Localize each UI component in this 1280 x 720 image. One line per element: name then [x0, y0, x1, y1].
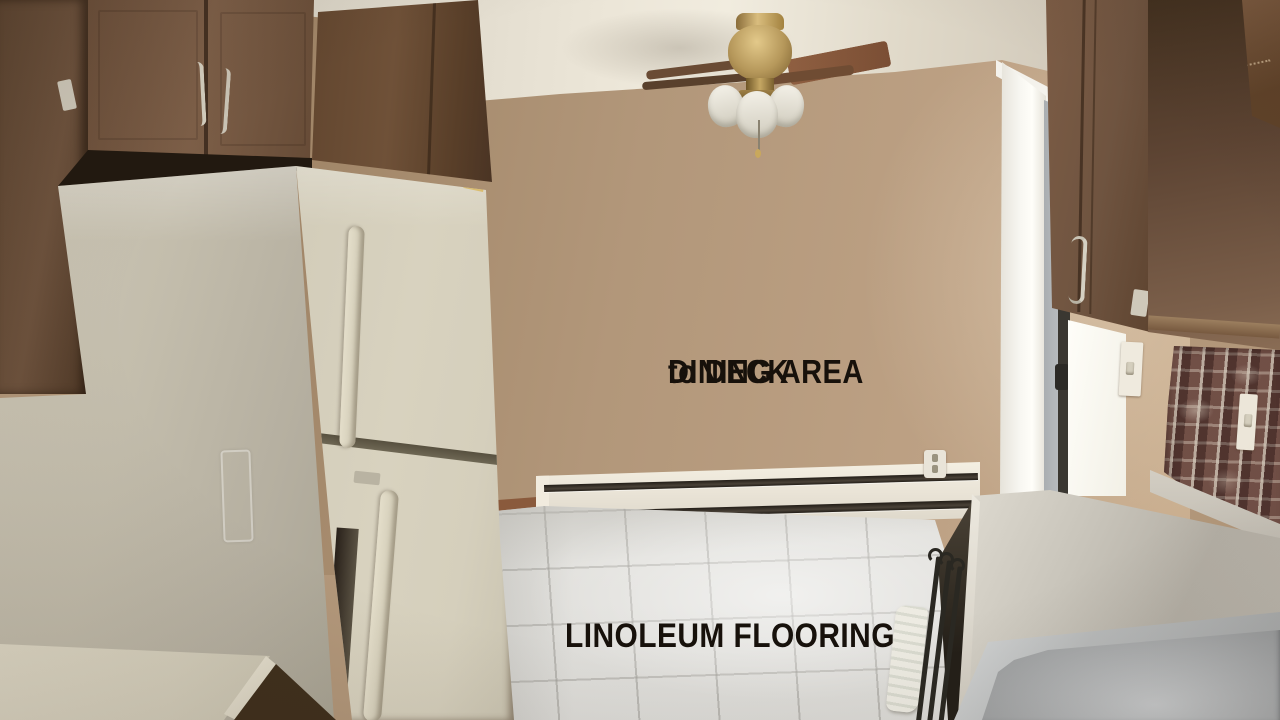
fridge-door-hinge — [353, 471, 380, 486]
cabinet-corner-seam — [427, 0, 436, 180]
kitchen-photo: DINING AREA to DECK LINOLEUM FLOORING — [0, 0, 1280, 720]
cabinet-hinge — [1130, 289, 1149, 317]
cabinet-door-gap — [204, 0, 208, 156]
upper-cabinet-right-front — [1044, 0, 1150, 334]
fan-pull-chain — [758, 120, 760, 151]
sliding-door-handle — [1055, 364, 1069, 390]
freezer-door-handle — [339, 226, 365, 448]
switch-toggle — [1244, 414, 1253, 428]
flooring-caption: LINOLEUM FLOORING — [565, 617, 895, 656]
fan-brass-dome — [728, 25, 792, 81]
sliding-door-daylight — [1068, 312, 1126, 496]
ceiling-fan — [640, 8, 890, 163]
cabinet-over-refrigerator — [310, 0, 492, 184]
sliding-door-frame — [1000, 60, 1046, 496]
refrigerator-front — [296, 160, 514, 720]
cabinet-handle — [1068, 236, 1088, 305]
fan-glass-shade — [736, 91, 778, 138]
cabinet-stile-groove — [1089, 0, 1096, 314]
heater-vent-slot — [544, 473, 978, 492]
upper-cabinet-left — [88, 0, 314, 160]
cabinet-hinge — [57, 79, 77, 111]
electrical-outlet — [924, 450, 946, 478]
fridge-door-handle — [363, 490, 399, 720]
switch-toggle — [1126, 362, 1135, 375]
fan-pull-chain-end — [755, 149, 761, 158]
cabinet-door-panel — [220, 12, 306, 146]
outlet-receptacle — [932, 465, 938, 473]
outlet-receptacle — [932, 454, 938, 462]
cabinet-door-panel — [98, 10, 198, 140]
refrigerator-side-detail — [220, 450, 253, 543]
caption-line: to DECK — [668, 352, 789, 391]
light-switch — [1119, 341, 1144, 396]
metal-rack-hook — [950, 558, 965, 573]
